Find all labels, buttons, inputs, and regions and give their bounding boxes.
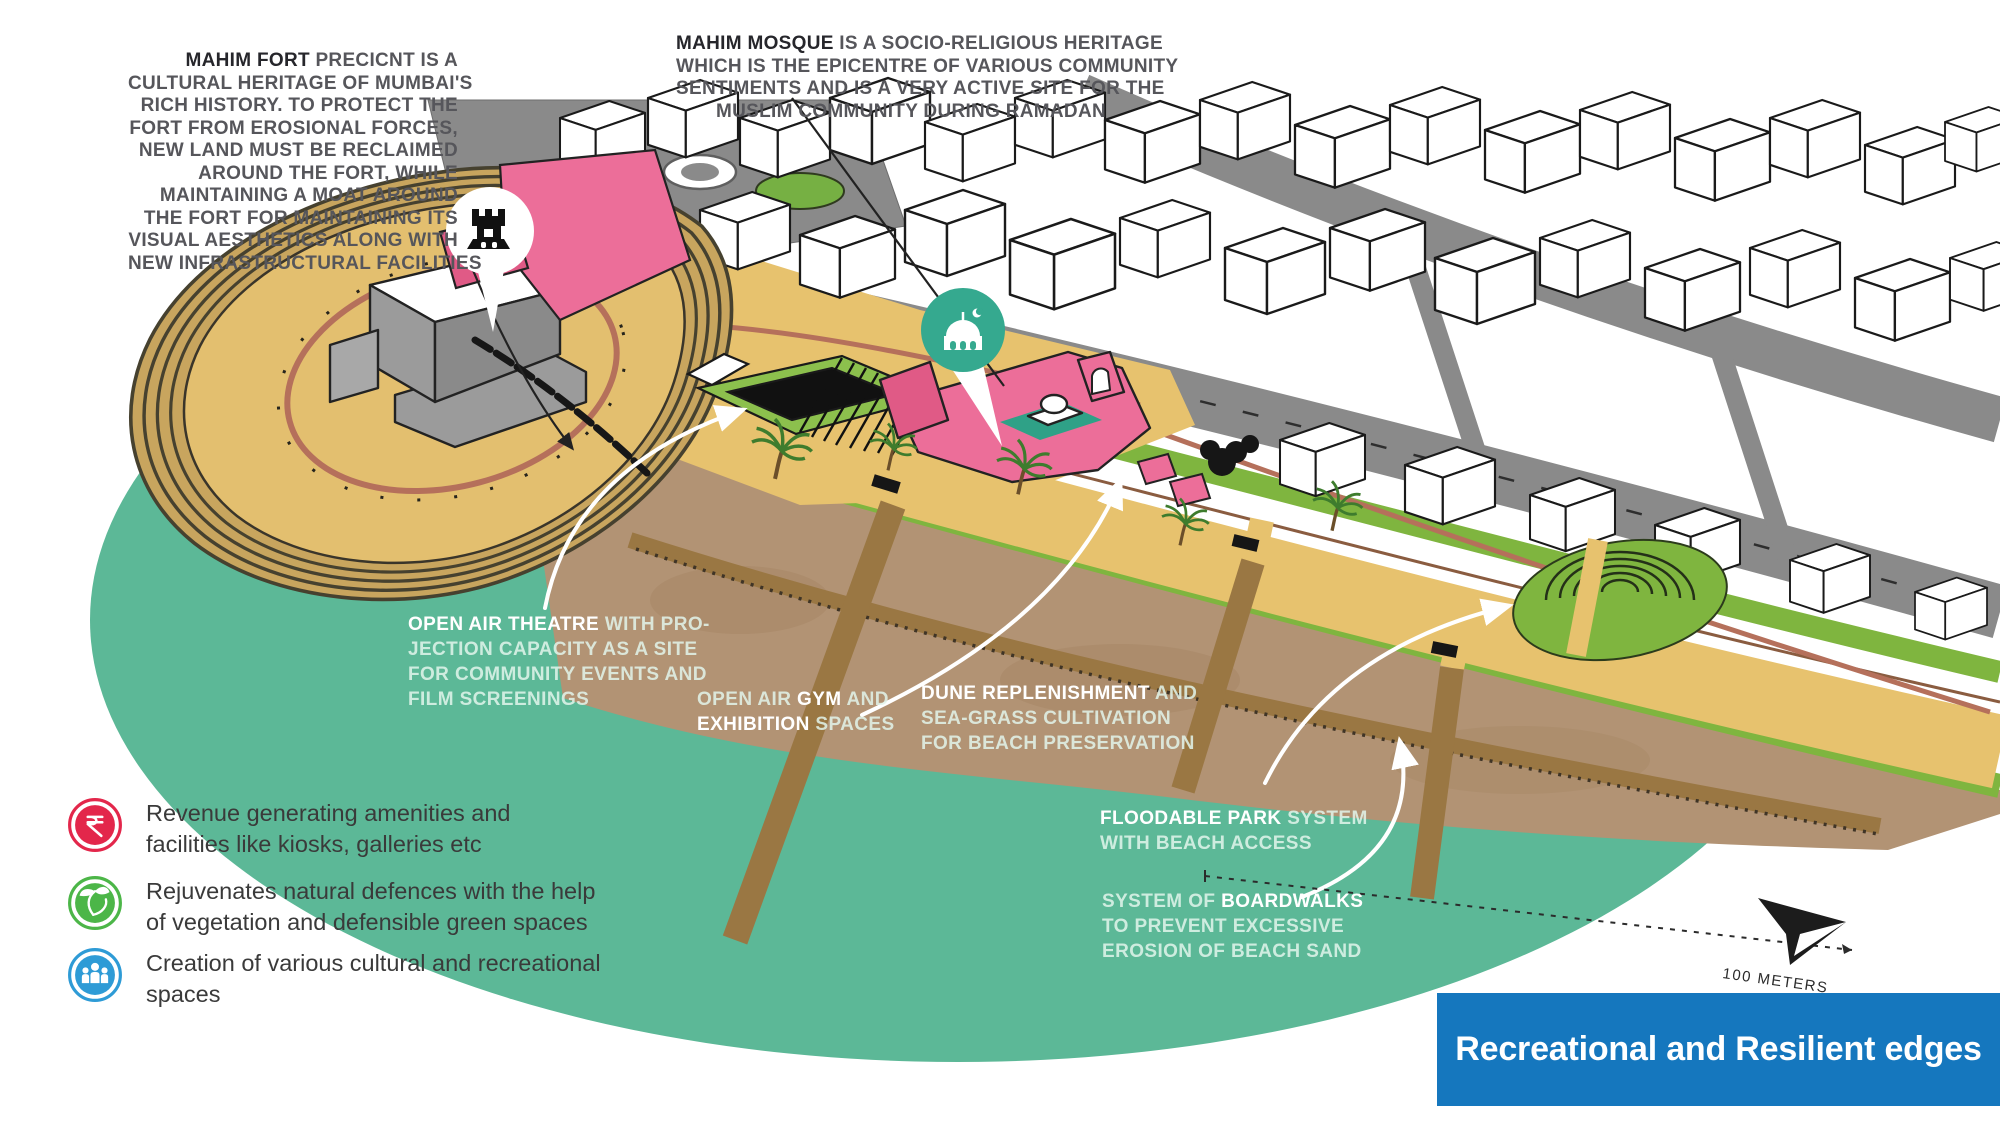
label-line: JECTION CAPACITY AS A SITE: [408, 637, 710, 662]
label-line: OPEN AIR THEATRE WITH PRO-: [408, 612, 710, 637]
annotation-text: IS A SOCIO-RELIGIOUS HERITAGE: [834, 33, 1163, 54]
label-text: SYSTEM OF: [1102, 891, 1221, 912]
legend-item-community: Creation of various cultural and recreat…: [66, 946, 601, 1010]
north-arrow-icon: [1758, 898, 1846, 965]
annotation-text: MAINTAINING A MOAT AROUND: [160, 185, 458, 206]
label-text: AND: [1150, 683, 1197, 704]
legend-line: Creation of various cultural and recreat…: [146, 948, 601, 979]
label-text: WITH BEACH ACCESS: [1100, 833, 1312, 854]
annotation-line: MAHIM FORT PRECICNT IS A: [128, 50, 458, 73]
annotation-text: PRECICNT IS A: [310, 50, 458, 71]
annotation-line: THE FORT FOR MAINTAINING ITS: [128, 208, 458, 231]
annotation-line: MAINTAINING A MOAT AROUND: [128, 185, 458, 208]
masterplan-slide: 100 METERS MAHIM FORT PRECICNT IS A CULT…: [0, 0, 2000, 1123]
rupee-icon: [66, 796, 124, 854]
label-line: FOR COMMUNITY EVENTS AND: [408, 662, 710, 687]
legend-text: Rejuvenates natural defences with the he…: [146, 874, 595, 938]
annotation-text: FORT FROM EROSIONAL FORCES,: [129, 118, 458, 139]
label-text: SPACES: [810, 714, 895, 735]
label-line: EXHIBITION SPACES: [697, 712, 895, 737]
theatre-label: OPEN AIR THEATRE WITH PRO- JECTION CAPAC…: [408, 612, 710, 712]
annotation-line: CULTURAL HERITAGE OF MUMBAI'S: [128, 73, 458, 96]
page-title: Recreational and Resilient edges: [1455, 1030, 1981, 1069]
title-banner: Recreational and Resilient edges: [1437, 993, 2000, 1106]
legend-text: Revenue generating amenities and facilit…: [146, 796, 511, 860]
legend-line: spaces: [146, 979, 601, 1010]
annotation-line: SENTIMENTS AND IS A VERY ACTIVE SITE FOR…: [676, 78, 1106, 101]
label-line: FOR BEACH PRESERVATION: [921, 731, 1197, 756]
label-line: FLOODABLE PARK SYSTEM: [1100, 806, 1368, 831]
label-line: OPEN AIR GYM AND: [697, 687, 895, 712]
gym-label: OPEN AIR GYM AND EXHIBITION SPACES: [697, 687, 895, 737]
annotation-text: NEW LAND MUST BE RECLAIMED: [139, 140, 458, 161]
annotation-line: RICH HISTORY. TO PROTECT THE: [128, 95, 458, 118]
annotation-text: SENTIMENTS AND IS A VERY ACTIVE SITE FOR…: [676, 78, 1165, 99]
legend-line: Rejuvenates natural defences with the he…: [146, 876, 595, 907]
label-line: EROSION OF BEACH SAND: [1102, 939, 1363, 964]
label-bold: EXHIBITION: [697, 714, 810, 735]
label-bold: OPEN AIR THEATRE: [408, 614, 599, 635]
legend-line: Revenue generating amenities and: [146, 798, 511, 829]
legend-text: Creation of various cultural and recreat…: [146, 946, 601, 1010]
people-icon: [66, 946, 124, 1004]
annotation-line: MAHIM MOSQUE IS A SOCIO-RELIGIOUS HERITA…: [676, 33, 1106, 56]
annotation-text: RICH HISTORY. TO PROTECT THE: [141, 95, 458, 116]
annotation-text: CULTURAL HERITAGE OF MUMBAI'S: [128, 73, 473, 94]
label-text: FOR COMMUNITY EVENTS AND: [408, 664, 707, 685]
dune-label: DUNE REPLENISHMENT AND SEA-GRASS CULTIVA…: [921, 681, 1197, 756]
label-bold: BOARDWALKS: [1221, 891, 1363, 912]
legend-item-revenue: Revenue generating amenities and facilit…: [66, 796, 511, 860]
annotation-text: MUSLIM COMMUNITY DURING RAMADAN: [716, 101, 1106, 122]
annotation-bold: MAHIM FORT: [186, 50, 310, 71]
label-text: FOR BEACH PRESERVATION: [921, 733, 1195, 754]
label-text: WITH PRO-: [599, 614, 710, 635]
fort-annotation: MAHIM FORT PRECICNT IS A CULTURAL HERITA…: [128, 50, 458, 275]
label-line: SEA-GRASS CULTIVATION: [921, 706, 1197, 731]
floodable-park-label: FLOODABLE PARK SYSTEM WITH BEACH ACCESS: [1100, 806, 1368, 856]
mosque-annotation: MAHIM MOSQUE IS A SOCIO-RELIGIOUS HERITA…: [676, 33, 1106, 123]
label-text: EROSION OF BEACH SAND: [1102, 941, 1362, 962]
label-text: AND: [842, 689, 889, 710]
label-line: FILM SCREENINGS: [408, 687, 710, 712]
label-bold: GYM: [797, 689, 841, 710]
label-text: SYSTEM: [1282, 808, 1368, 829]
leaf-icon: [66, 874, 124, 932]
label-line: DUNE REPLENISHMENT AND: [921, 681, 1197, 706]
annotation-text: THE FORT FOR MAINTAINING ITS: [144, 208, 458, 229]
annotation-text: VISUAL AESTHETICS ALONG WITH: [128, 230, 458, 251]
annotation-line: FORT FROM EROSIONAL FORCES,: [128, 118, 458, 141]
annotation-line: VISUAL AESTHETICS ALONG WITH: [128, 230, 458, 253]
annotation-line: MUSLIM COMMUNITY DURING RAMADAN: [676, 101, 1106, 124]
annotation-line: WHICH IS THE EPICENTRE OF VARIOUS COMMUN…: [676, 56, 1106, 79]
label-line: SYSTEM OF BOARDWALKS: [1102, 889, 1363, 914]
label-text: TO PREVENT EXCESSIVE: [1102, 916, 1344, 937]
legend-item-nature: Rejuvenates natural defences with the he…: [66, 874, 595, 938]
label-text: OPEN AIR: [697, 689, 797, 710]
label-text: JECTION CAPACITY AS A SITE: [408, 639, 697, 660]
label-line: WITH BEACH ACCESS: [1100, 831, 1368, 856]
legend-line: facilities like kiosks, galleries etc: [146, 829, 511, 860]
annotation-line: NEW LAND MUST BE RECLAIMED: [128, 140, 458, 163]
boardwalks-label: SYSTEM OF BOARDWALKS TO PREVENT EXCESSIV…: [1102, 889, 1363, 964]
annotation-line: AROUND THE FORT, WHILE: [128, 163, 458, 186]
annotation-line: NEW INFRASTRUCTURAL FACILITIES: [128, 253, 458, 276]
label-bold: FLOODABLE PARK: [1100, 808, 1282, 829]
annotation-text: WHICH IS THE EPICENTRE OF VARIOUS COMMUN…: [676, 56, 1178, 77]
legend-line: of vegetation and defensible green space…: [146, 907, 595, 938]
label-text: SEA-GRASS CULTIVATION: [921, 708, 1171, 729]
label-line: TO PREVENT EXCESSIVE: [1102, 914, 1363, 939]
annotation-bold: MAHIM MOSQUE: [676, 33, 834, 54]
label-text: FILM SCREENINGS: [408, 689, 589, 710]
annotation-text: NEW INFRASTRUCTURAL FACILITIES: [128, 253, 482, 274]
label-bold: DUNE REPLENISHMENT: [921, 683, 1150, 704]
annotation-text: AROUND THE FORT, WHILE: [198, 163, 458, 184]
